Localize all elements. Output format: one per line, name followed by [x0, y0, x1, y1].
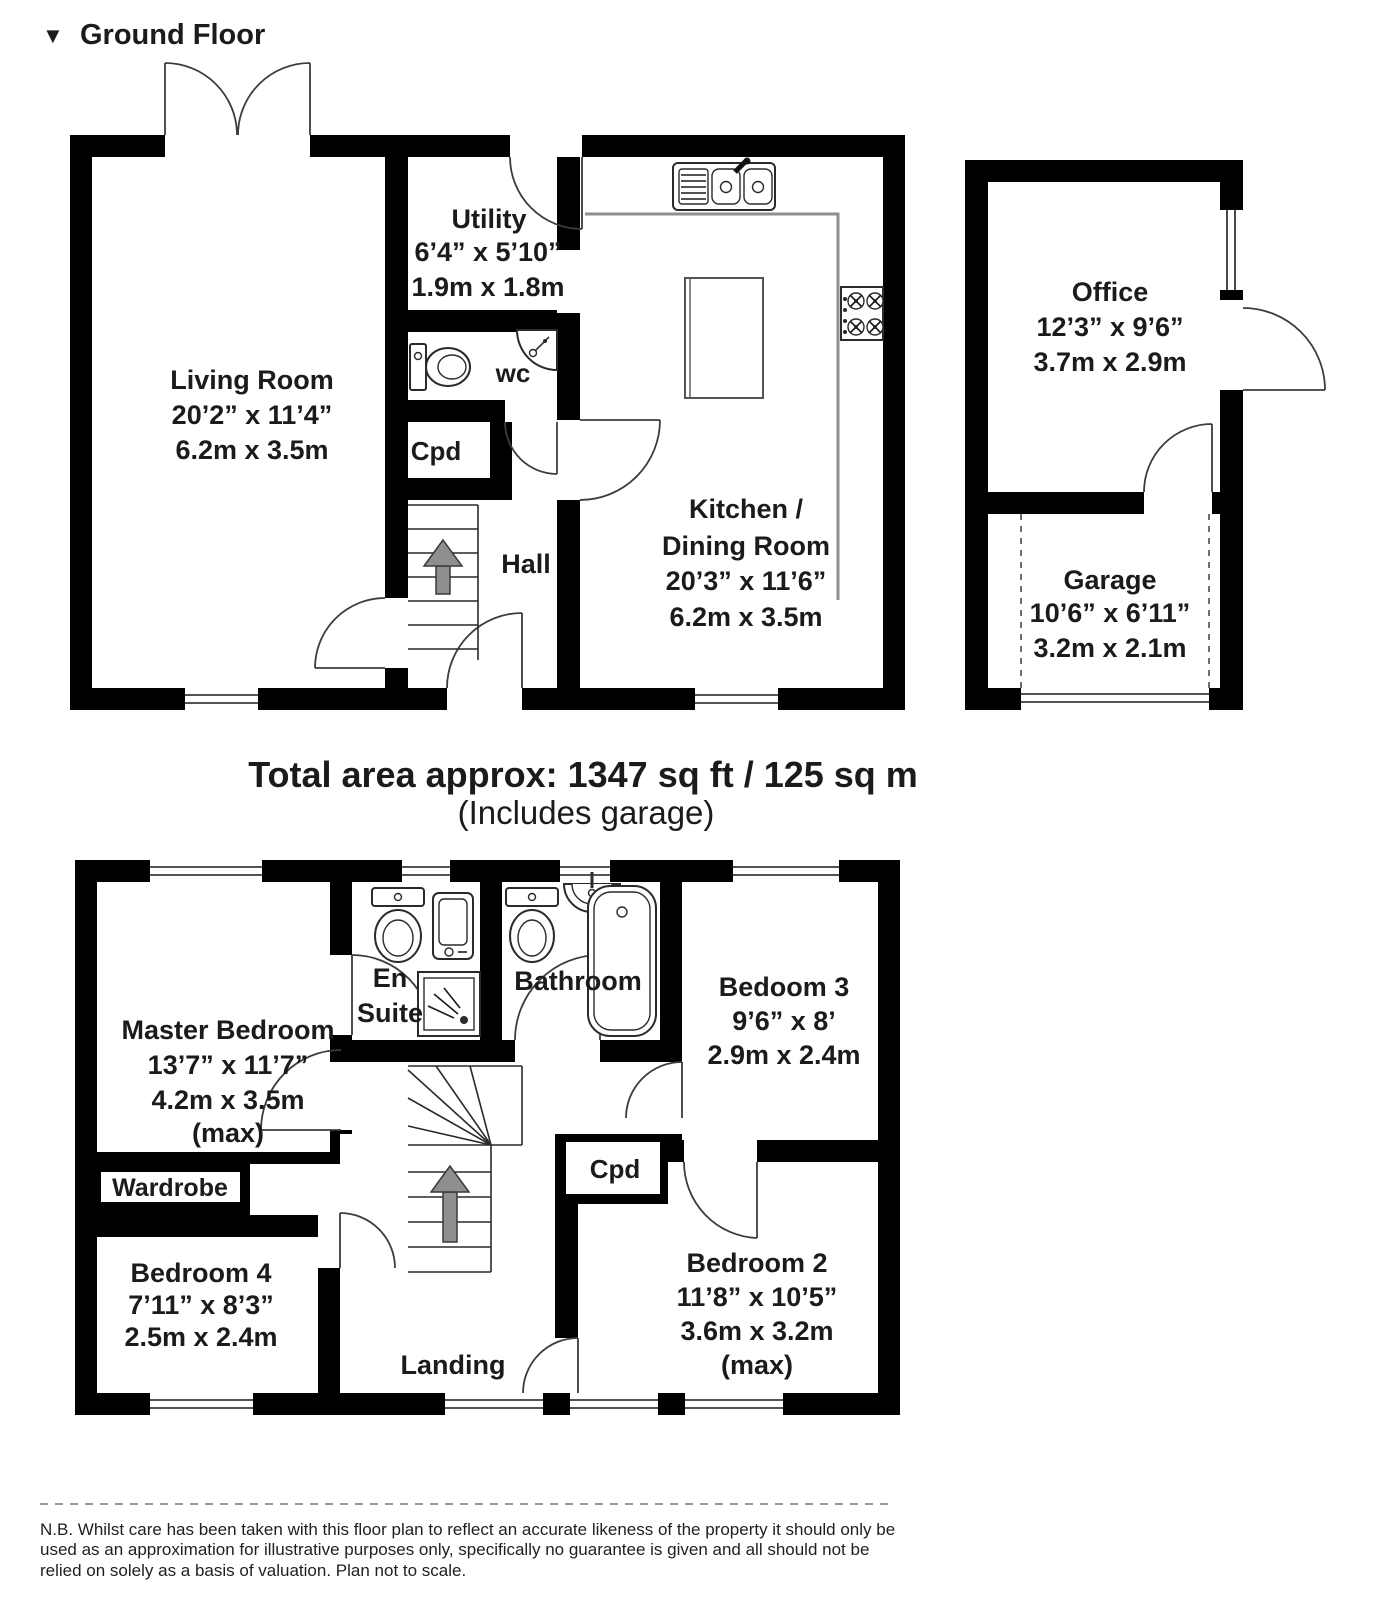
living-room-metric: 6.2m x 3.5m: [175, 435, 328, 465]
kitchen-name-line2: Dining Room: [662, 531, 830, 561]
bedroom3-metric: 2.9m x 2.4m: [707, 1040, 860, 1070]
disclaimer-text: N.B. Whilst care has been taken with thi…: [40, 1520, 898, 1581]
office-imperial: 12’3” x 9’6”: [1036, 312, 1183, 342]
landing-label: Landing: [401, 1350, 506, 1380]
bedroom2-metric: 3.6m x 3.2m: [680, 1316, 833, 1346]
shower-icon: [418, 972, 480, 1036]
wardrobe-label: Wardrobe: [112, 1174, 228, 1202]
total-area-text: Total area approx: 1347 sq ft / 125 sq m: [248, 754, 918, 795]
bathroom-label: Bathroom: [514, 966, 642, 996]
living-room-name: Living Room: [170, 365, 334, 395]
wc-label: wc: [495, 358, 531, 388]
french-doors: [165, 63, 310, 135]
bathroom-toilet-icon: [506, 888, 558, 962]
master-bedroom-qualifier: (max): [192, 1118, 264, 1148]
ff-corridor-area: [352, 1062, 682, 1134]
master-bedroom-metric: 4.2m x 3.5m: [151, 1085, 304, 1115]
utility-imperial: 6’4” x 5’10”: [414, 237, 561, 267]
office-metric: 3.7m x 2.9m: [1033, 347, 1186, 377]
en-suite-name-line2: Suite: [357, 998, 423, 1028]
office-garage-plan: Office 12’3” x 9’6” 3.7m x 2.9m Garage 1…: [965, 160, 1325, 710]
area-summary: Total area approx: 1347 sq ft / 125 sq m…: [248, 754, 918, 831]
first-floor-plan: Master Bedroom 13’7” x 11’7” 4.2m x 3.5m…: [75, 860, 900, 1415]
bedroom4-label: Bedroom 4 7’11” x 8’3” 2.5m x 2.4m: [124, 1258, 277, 1352]
bedroom4-metric: 2.5m x 2.4m: [124, 1322, 277, 1352]
garage-metric: 3.2m x 2.1m: [1033, 633, 1186, 663]
living-room-imperial: 20’2” x 11’4”: [172, 400, 333, 430]
office-name: Office: [1072, 277, 1149, 307]
page-title-text: Ground Floor: [80, 19, 265, 51]
bedroom4-name: Bedroom 4: [130, 1258, 271, 1288]
page-title: ▼ Ground Floor: [42, 19, 265, 51]
bedroom3-imperial: 9’6” x 8’: [732, 1006, 836, 1036]
ff-cpd-label: Cpd: [590, 1154, 641, 1184]
includes-garage-text: (Includes garage): [458, 794, 715, 831]
hall-nook-area: [512, 422, 557, 500]
hob-icon: [841, 287, 883, 340]
wc-toilet-icon: [410, 344, 470, 390]
bedroom4-imperial: 7’11” x 8’3”: [128, 1290, 274, 1320]
hall-label: Hall: [501, 549, 551, 579]
master-bedroom-name: Master Bedroom: [121, 1015, 334, 1045]
living-room-label: Living Room 20’2” x 11’4” 6.2m x 3.5m: [170, 365, 334, 465]
kitchen-island: [685, 278, 763, 398]
utility-metric: 1.9m x 1.8m: [411, 272, 564, 302]
bedroom2-imperial: 11’8” x 10’5”: [677, 1282, 838, 1312]
bathtub-icon: [588, 886, 656, 1036]
landing-pocket-area: [250, 1164, 355, 1215]
garage-name: Garage: [1063, 565, 1156, 595]
kitchen-name-line1: Kitchen /: [689, 494, 804, 524]
kitchen-metric: 6.2m x 3.5m: [669, 602, 822, 632]
kitchen-imperial: 20’3” x 11’6”: [666, 566, 827, 596]
ground-floor-plan: Living Room 20’2” x 11’4” 6.2m x 3.5m Ut…: [70, 63, 905, 710]
en-suite-name-line1: En: [373, 963, 408, 993]
bedroom2-name: Bedroom 2: [686, 1248, 827, 1278]
office-external-door: [1243, 308, 1325, 390]
gf-cpd-label: Cpd: [411, 436, 462, 466]
floor-plan-canvas: ▼ Ground Floor: [0, 0, 1393, 1600]
kitchen-sink-icon: [673, 158, 775, 211]
en-suite-toilet-icon: [372, 888, 424, 962]
bedroom3-name: Bedoom 3: [719, 972, 850, 1002]
floor-marker-icon: ▼: [42, 23, 64, 48]
master-bedroom-imperial: 13’7” x 11’7”: [148, 1050, 309, 1080]
en-suite-sink-icon: [433, 893, 473, 959]
garage-imperial: 10’6” x 6’11”: [1030, 598, 1191, 628]
utility-name: Utility: [451, 204, 526, 234]
bedroom2-qualifier: (max): [721, 1350, 793, 1380]
